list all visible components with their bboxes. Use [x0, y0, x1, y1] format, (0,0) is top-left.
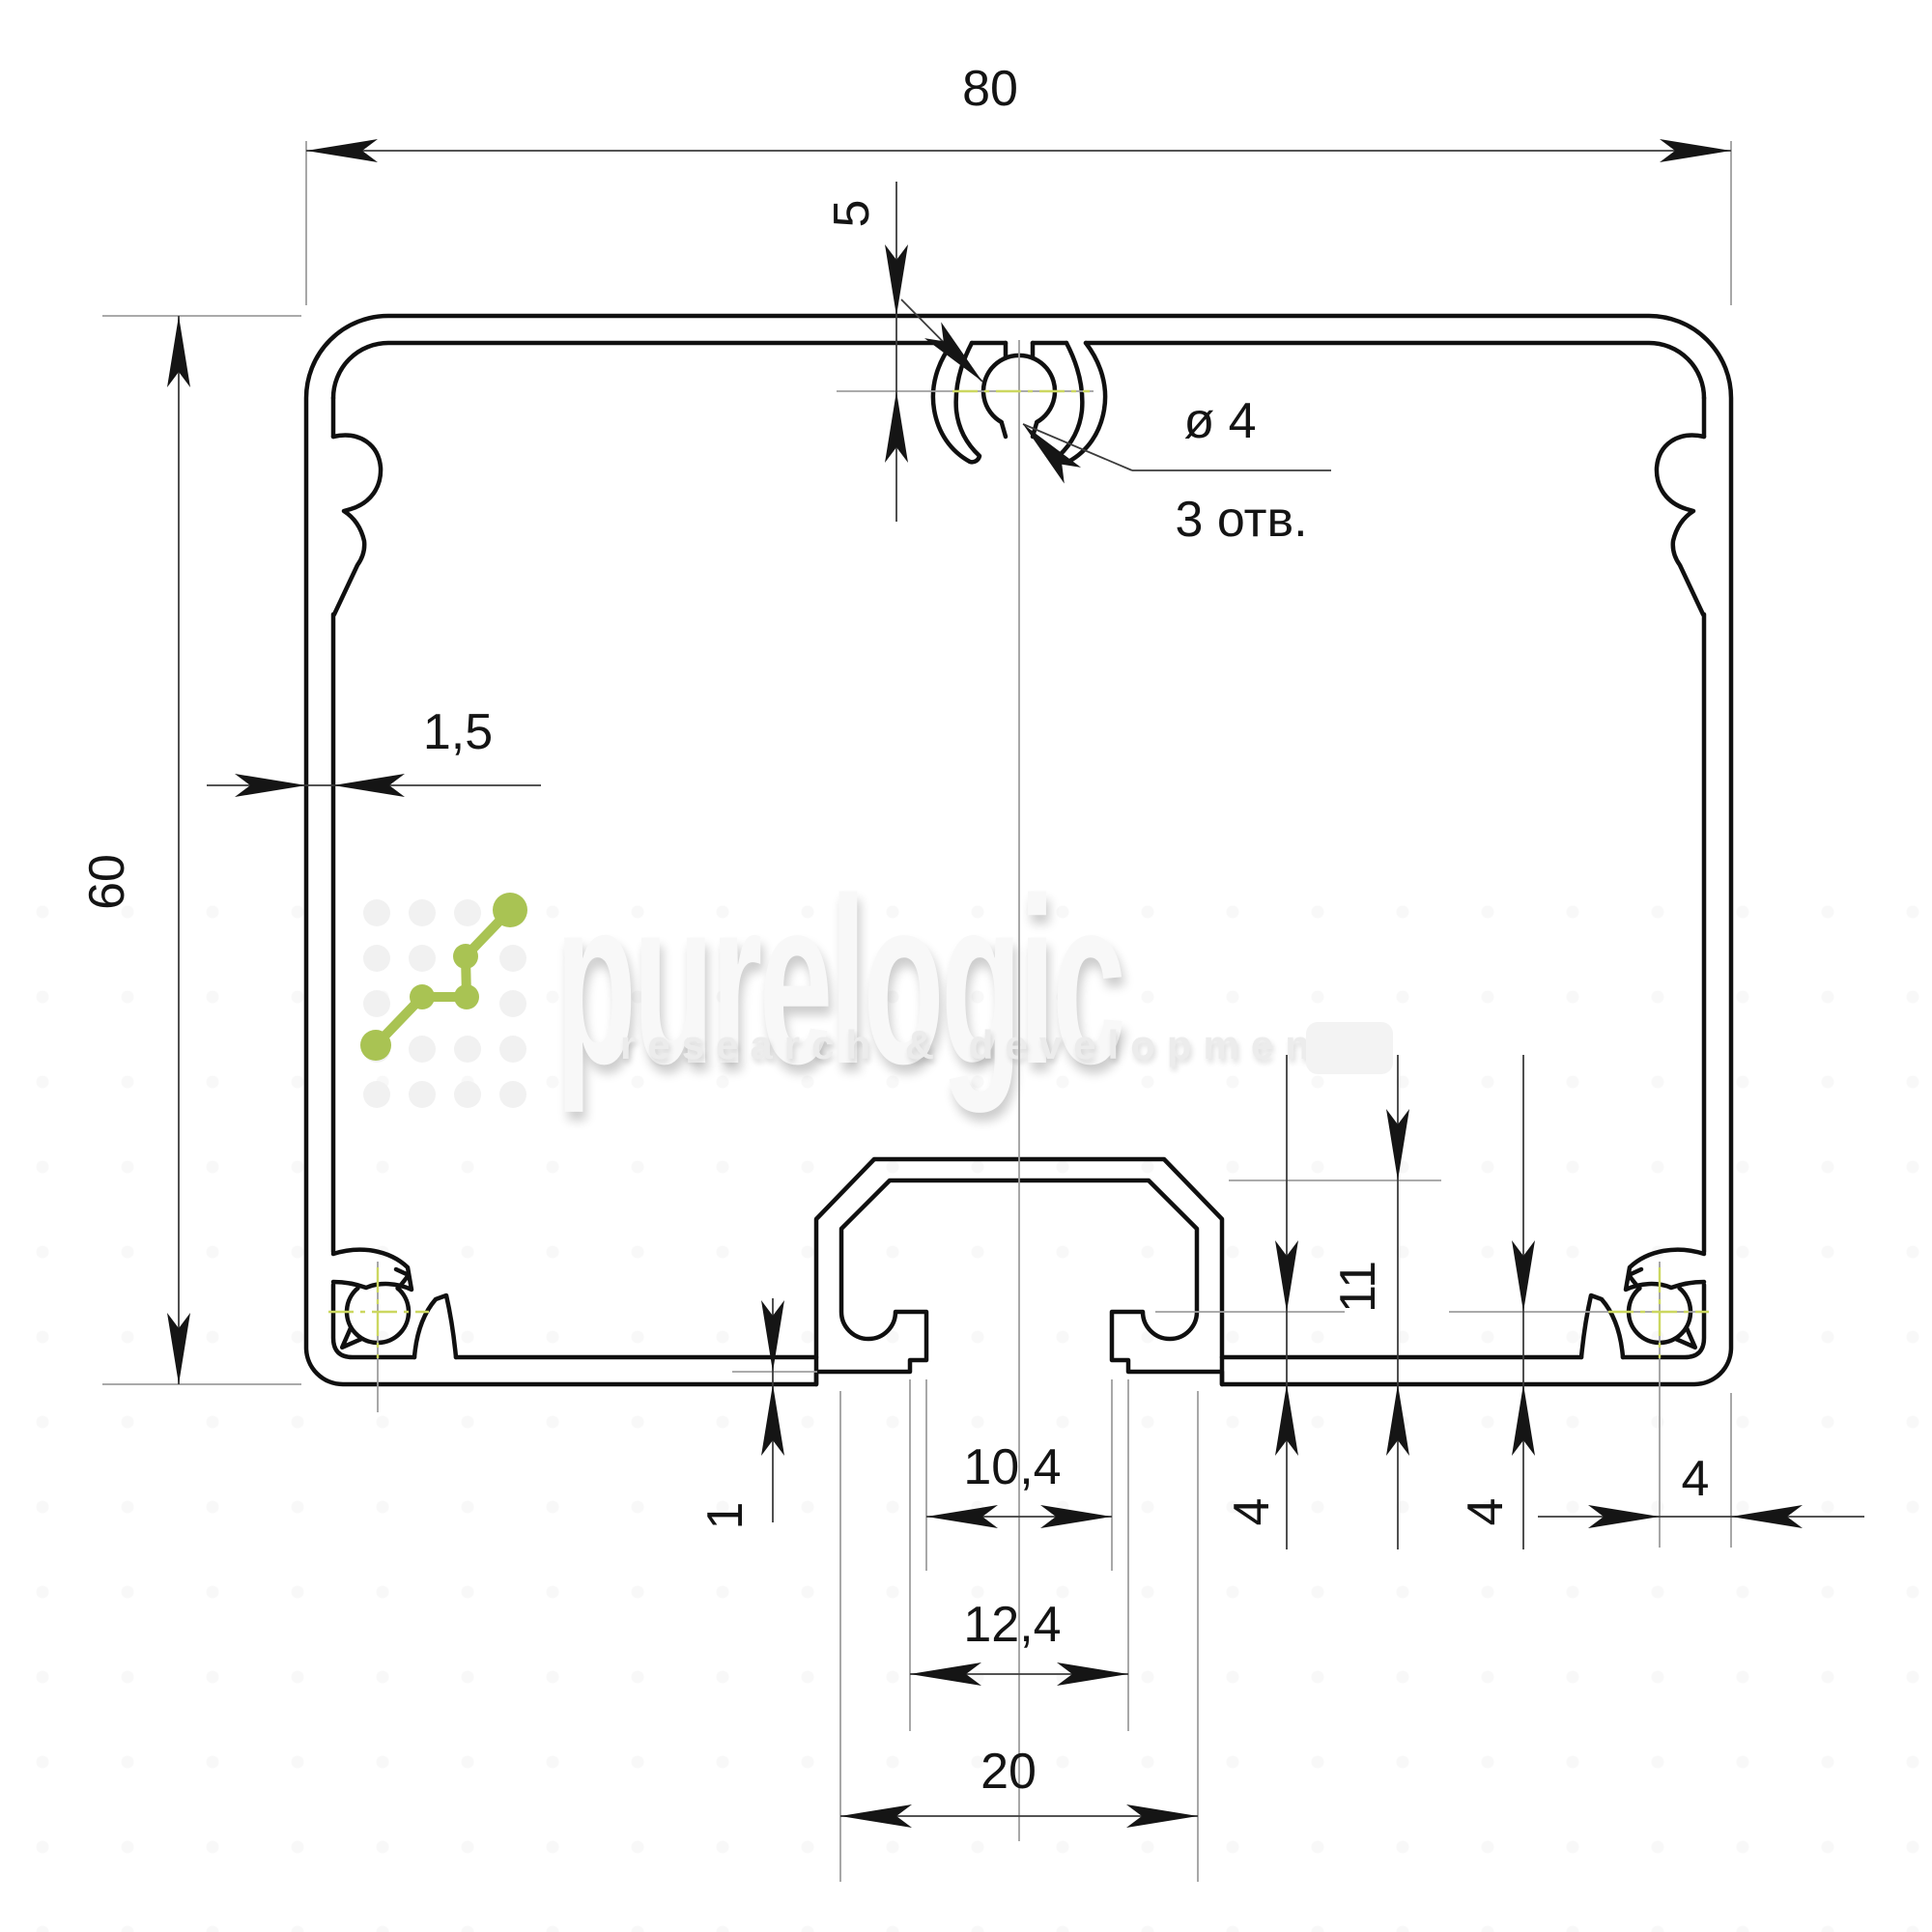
label-slot-depth: 11: [1330, 1261, 1386, 1313]
dimension-labels: 80 60 1,5 5 ø 4 3 отв. 11 4 4 4 1 10,4 1…: [79, 61, 1709, 1800]
label-overall-width: 80: [962, 61, 1018, 117]
label-overall-height: 60: [79, 854, 135, 910]
label-wall-thickness: 1,5: [423, 704, 493, 760]
ext-80: [306, 141, 1731, 305]
watermark-logo-grid: [363, 899, 526, 1108]
label-slot-chamber-width: 20: [980, 1744, 1037, 1800]
clip-hook-right: [1657, 436, 1704, 614]
screw-port-bottom-left: [333, 1250, 456, 1357]
label-slot-opening: 12,4: [963, 1597, 1061, 1653]
clip-hook-left: [333, 436, 381, 614]
label-corner-hole-side-offset: 4: [1682, 1451, 1710, 1507]
label-bottom-recess: 1: [697, 1502, 753, 1530]
label-slot-lip-gap: 10,4: [963, 1439, 1061, 1495]
label-corner-hole-height: 4: [1458, 1498, 1514, 1526]
watermark-end-block: [1306, 1022, 1393, 1074]
screw-port-bottom-right: [1581, 1250, 1704, 1357]
label-holes-note: 3 отв.: [1175, 492, 1307, 548]
leader-dia4: [901, 299, 1331, 470]
label-top-hole-offset: 5: [824, 200, 880, 228]
extension-lines: [102, 141, 1731, 1882]
profile-drawing: 80 60 1,5 5 ø 4 3 отв. 11 4 4 4 1 10,4 1…: [0, 0, 1932, 1932]
label-hole-diameter: ø 4: [1183, 393, 1256, 449]
inner-left-wall: [333, 398, 816, 1357]
ext-60: [102, 316, 301, 1384]
label-lip-height: 4: [1224, 1498, 1280, 1526]
dimension-lines: [179, 151, 1864, 1816]
